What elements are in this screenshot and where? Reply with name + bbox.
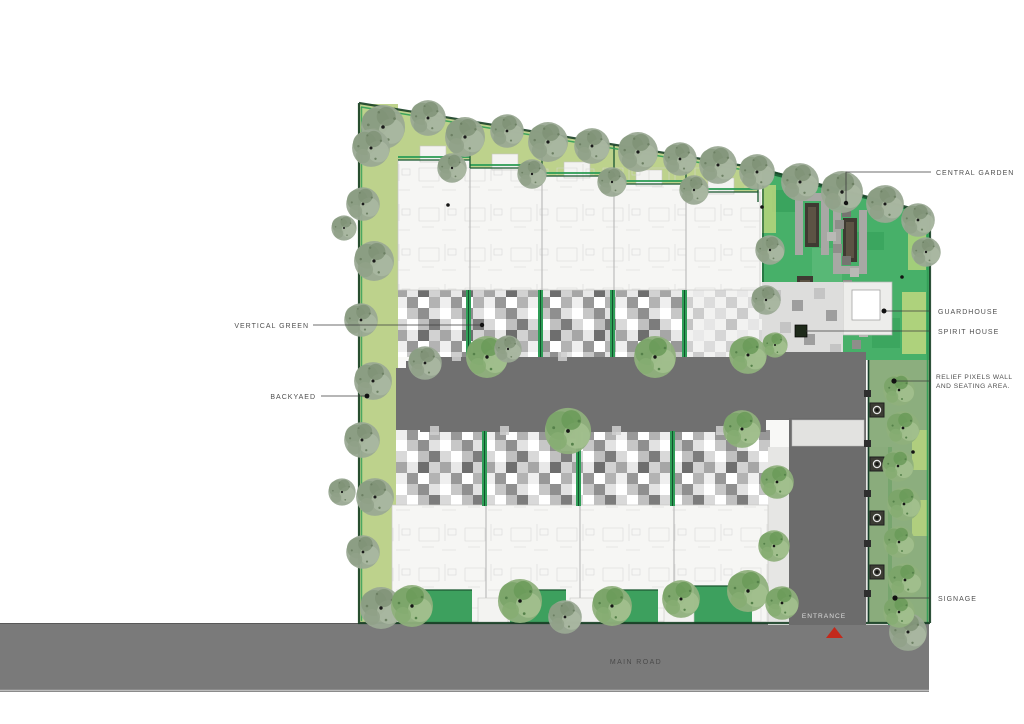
guardhouse-label: GUARDHOUSE bbox=[938, 309, 998, 316]
plan-dot bbox=[900, 275, 904, 279]
plan-dot bbox=[446, 203, 450, 207]
vertical-green-label: VERTICAL GREEN bbox=[234, 323, 309, 330]
entrance-label: ENTRANCE bbox=[802, 613, 846, 620]
backyard-label: BACKYAED bbox=[270, 394, 316, 401]
site-plan-drawing: MAIN ROAD bbox=[0, 0, 1024, 724]
plan-dot bbox=[760, 205, 764, 209]
central-garden-label: CENTRAL GARDEN bbox=[936, 170, 1014, 177]
annotation-backyard: BACKYAED bbox=[270, 394, 369, 401]
dropoff-court bbox=[792, 420, 864, 446]
signage-label: SIGNAGE bbox=[938, 596, 977, 603]
spirit-house bbox=[795, 325, 807, 337]
main-road: MAIN ROAD bbox=[0, 623, 929, 692]
guardhouse bbox=[843, 282, 892, 335]
spirit-house-label: SPIRIT HOUSE bbox=[938, 329, 999, 336]
main-road-label: MAIN ROAD bbox=[610, 659, 662, 666]
plan-dot bbox=[911, 450, 915, 454]
site-plan-page: MAIN ROAD bbox=[0, 0, 1024, 724]
relief-wall-label-line2: AND SEATING AREA. bbox=[936, 383, 1010, 390]
relief-wall-label-line1: RELIEF PIXELS WALL bbox=[936, 374, 1013, 381]
